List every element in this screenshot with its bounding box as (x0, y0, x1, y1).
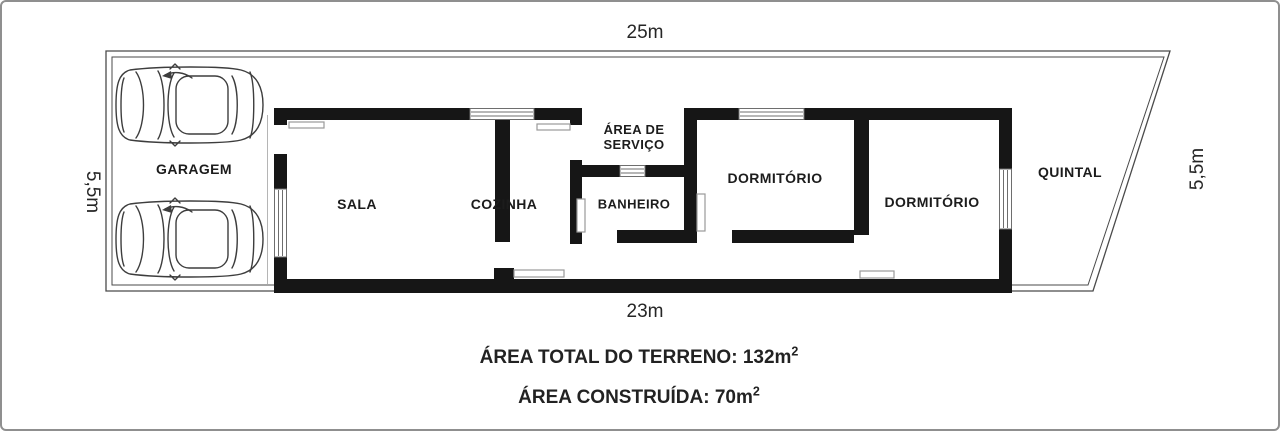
total-area-text: ÁREA TOTAL DO TERRENO: 132m2 (480, 347, 799, 369)
wall (999, 229, 1012, 293)
window-cozinha (470, 109, 534, 120)
wall (495, 120, 510, 242)
dimension-left: 5,5m (81, 171, 103, 213)
dimension-top: 25m (627, 22, 664, 44)
room-label-garagem: GARAGEM (156, 161, 232, 177)
window-dormitorio-2 (1000, 169, 1012, 229)
car-icon (116, 64, 263, 146)
door-leaf (289, 122, 324, 128)
wall (999, 108, 1012, 169)
door-leaf (514, 270, 564, 277)
car-icon (116, 198, 263, 280)
wall (854, 108, 869, 235)
built-area-text: ÁREA CONSTRUÍDA: 70m2 (518, 387, 760, 409)
window-banheiro (620, 166, 645, 177)
dimension-right: 5,5m (1187, 148, 1209, 190)
room-label-banheiro: BANHEIRO (598, 197, 671, 212)
wall (582, 165, 620, 177)
total-area-superscript: 2 (791, 345, 798, 359)
wall (274, 154, 287, 189)
door-leaf (577, 199, 585, 232)
total-area-label: ÁREA TOTAL DO TERRENO: 132m (480, 347, 792, 368)
dimension-bottom: 23m (627, 301, 664, 323)
built-area-superscript: 2 (753, 385, 760, 399)
wall (684, 108, 697, 237)
wall (494, 268, 514, 280)
door-leaf (860, 271, 894, 278)
wall (274, 108, 470, 120)
wall (690, 108, 739, 120)
wall (570, 108, 582, 125)
wall (732, 230, 854, 243)
door-leaf (697, 194, 705, 231)
room-label-dormitorio-1: DORMITÓRIO (728, 170, 823, 186)
wall (274, 108, 287, 125)
door-leaf (537, 124, 570, 130)
floor-plan-canvas: 25m 23m 5,5m 5,5m GARAGEM SALA COZINHA Á… (0, 0, 1280, 431)
room-label-area-de-servico: ÁREA DE SERVIÇO (592, 122, 676, 152)
window-sala (275, 189, 287, 257)
wall (804, 108, 1012, 120)
window-dormitorio-1 (739, 109, 804, 120)
room-label-dormitorio-2: DORMITÓRIO (885, 194, 980, 210)
wall (274, 279, 1012, 293)
room-label-sala: SALA (337, 196, 377, 212)
built-area-label: ÁREA CONSTRUÍDA: 70m (518, 387, 753, 408)
room-label-quintal: QUINTAL (1038, 164, 1102, 180)
room-label-cozinha: COZINHA (471, 196, 538, 212)
